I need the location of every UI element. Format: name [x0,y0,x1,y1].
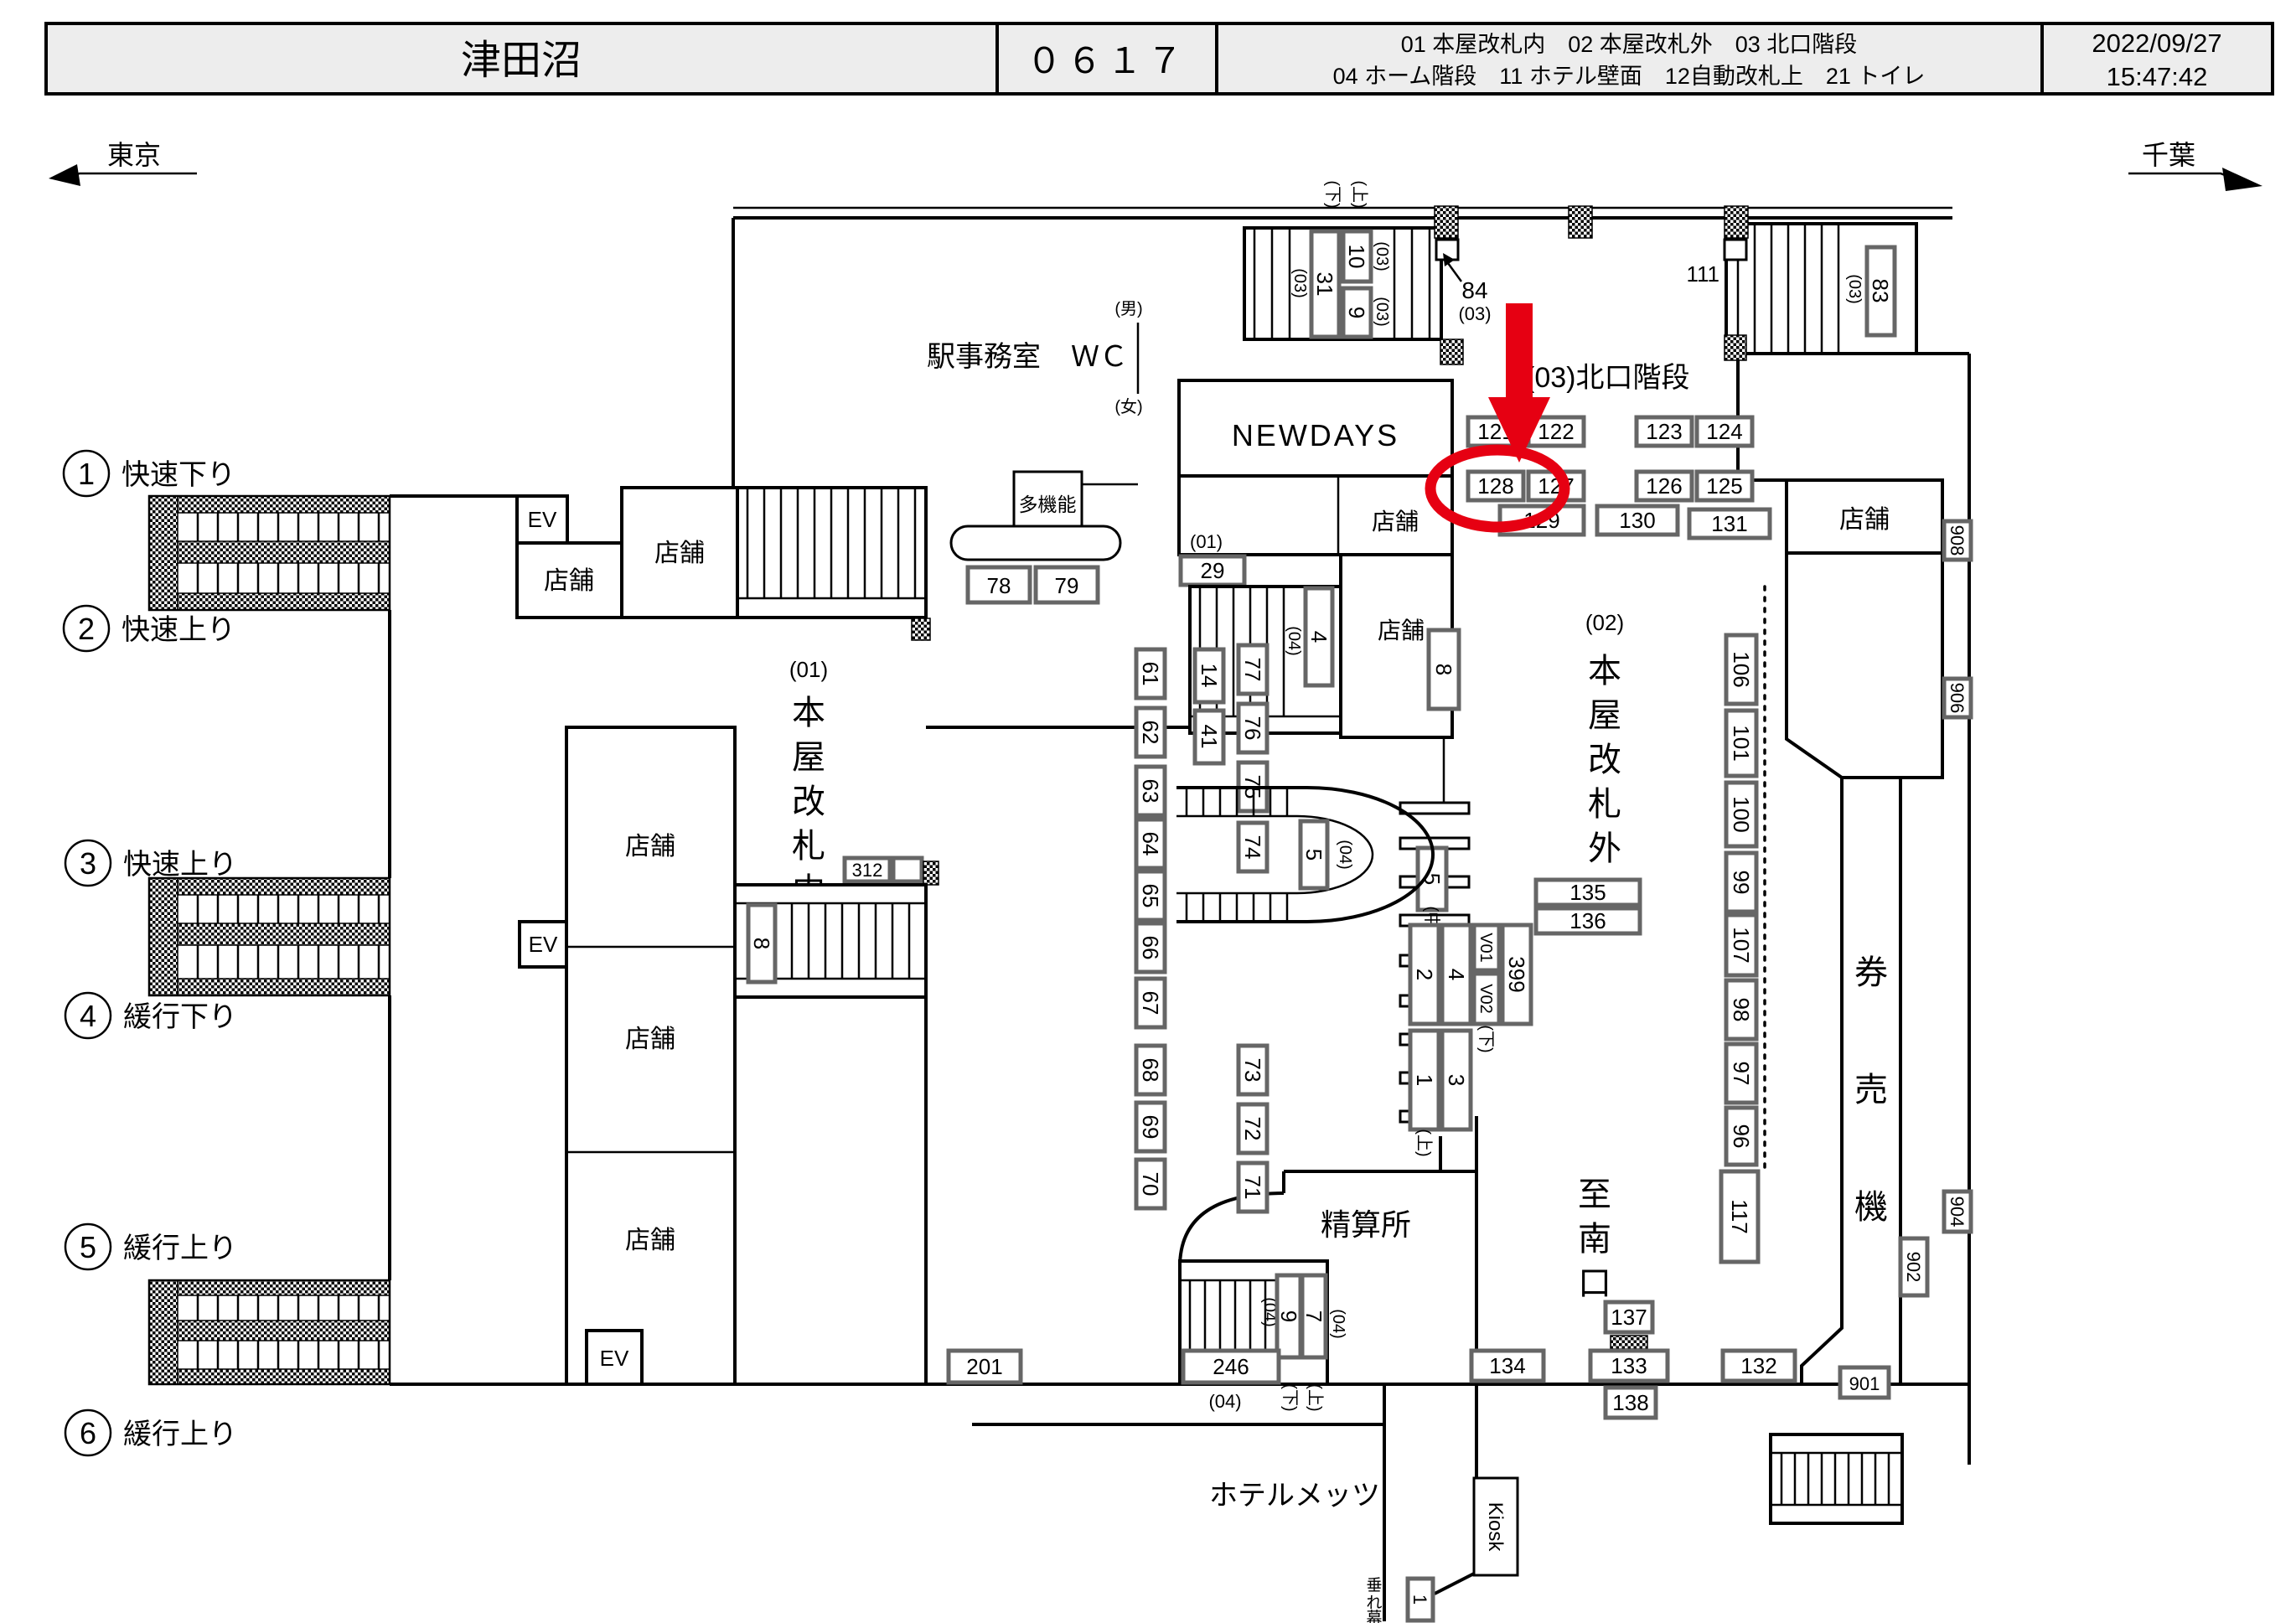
ad-69: 69 [1138,1115,1163,1140]
pillar-icon [1435,206,1458,238]
stair-03-tag: (03) [1373,241,1391,271]
ad-106: 106 [1729,651,1754,687]
up-tag: (上) [1350,180,1369,208]
ticket-gates: 5 (中) 2 4 V01 V02 399 (下) 1 3 (上) [1400,803,1531,1157]
outside-char: 札 [1588,786,1621,823]
ad-73: 73 [1240,1058,1265,1083]
pillar-icon [923,861,939,885]
tvm-char: 機 [1854,1189,1888,1226]
ad-312-group: 312 [845,858,939,885]
ad-97: 97 [1729,1062,1754,1086]
stairs-upper-left [737,488,930,640]
left-center-shops: 店舗 店舗 店舗 EV EV [520,727,735,1384]
station-office-label: 駅事務室 [927,341,1041,373]
blank-box [893,858,922,881]
ad-117: 117 [1727,1199,1752,1233]
fare-office-label: 精算所 [1321,1207,1411,1242]
to-south-exit-label: 至 南 口 [1578,1176,1611,1302]
ad-83: 83 [1868,279,1893,303]
stairs-north-right: (03) 83 111 [1686,206,1916,360]
ad-14: 14 [1197,664,1222,688]
platform-3-name: 快速上り [123,849,237,881]
platform-1-number: 1 [78,457,95,491]
pillar-ads-right-column: 77 76 75 74 73 72 71 [1238,645,1267,1212]
pillar-icon [1440,339,1463,364]
ad-122: 122 [1538,419,1574,444]
north-stairs-label: (03)北口階段 [1525,362,1689,394]
wc-label: ＷＣ [1071,341,1128,373]
ad-8-gate: 8 [1431,664,1456,675]
south-wall-ads: 134 137 133 138 132 [1471,1302,1795,1418]
counter [951,526,1120,560]
outside-gate-area-label: (02) 本 屋 改 札 外 [1585,610,1624,867]
ev-1-label: EV [528,507,557,532]
highlight-arrow-shaft [1506,303,1533,399]
ad-10: 10 [1344,245,1369,269]
south-char: 至 [1578,1176,1611,1213]
ad-126: 126 [1646,473,1682,499]
ev-3-label: EV [600,1346,629,1371]
ad-62: 62 [1138,721,1163,745]
outside-char: 外 [1588,830,1621,867]
ad-123: 123 [1646,419,1682,444]
ad-71: 71 [1240,1176,1265,1200]
ad-246: 246 [1213,1354,1249,1379]
ad-70: 70 [1138,1172,1163,1197]
station-name: 津田沼 [461,39,582,83]
shop-label: 店舗 [1372,509,1419,535]
inside-char: 札 [792,828,825,865]
ev-shop-row-upper: EV 店舗 店舗 [517,488,930,640]
area-02-tag: (02) [1585,610,1624,635]
stairs-u-central: 5 (04) [1176,788,1433,922]
stair-03-tag: (03) [1290,268,1309,298]
stair-03-tag: (03) [1373,297,1391,327]
legend-line-1: 01 本屋改札内 02 本屋改札外 03 北口階段 [1401,32,1858,57]
ad-61: 61 [1138,662,1163,686]
platform-stair-band-56 [149,1280,390,1384]
ad-137: 137 [1611,1305,1647,1330]
ad-128: 128 [1477,473,1513,499]
ad-67: 67 [1138,991,1163,1016]
ad-130: 130 [1619,508,1655,533]
platform-4: 4緩行下り [65,993,237,1038]
time-text: 15:47:42 [2107,62,2208,91]
shop-block [566,727,735,1384]
map-code: ０６１７ [1026,41,1187,80]
ad-906: 906 [1947,683,1968,714]
ad-9: 9 [1344,307,1369,318]
platform-6: 6緩行上り [65,1410,237,1455]
tokyo-label: 東京 [107,140,161,170]
area-01-tag: (01) [789,657,828,682]
tvm-char: 券 [1854,954,1888,991]
pillar-icon [1569,206,1592,238]
left-arrow-icon [49,164,80,186]
ad-banner-1: 1 [1409,1595,1430,1605]
ad-98: 98 [1729,998,1754,1022]
platform-1-name: 快速下り [122,459,235,491]
upper-left-facilities: 駅事務室 ＷＣ (男) (女) 多機能 [927,300,1143,560]
ad-65: 65 [1138,884,1163,908]
ad-29: 29 [1201,558,1225,583]
ad-gate-4: 4 [1444,969,1469,980]
ad-136: 136 [1569,908,1606,933]
down-tag: (下) [1280,1383,1299,1411]
ad-125: 125 [1706,473,1742,499]
ad-76: 76 [1240,716,1265,741]
ad-111: 111 [1686,261,1719,287]
ad-133: 133 [1611,1353,1647,1378]
ad-201: 201 [966,1354,1002,1379]
platform-stair-band-12 [149,496,390,610]
pillar-icon [1725,206,1748,238]
platform-2-name: 快速上り [122,614,235,646]
ad-7: 7 [1301,1310,1326,1322]
area-01-tag: (01) [1190,531,1223,552]
ev-2-label: EV [529,932,558,957]
platform-5-name: 緩行上り [123,1233,237,1264]
hotel-label: ホテルメッツ [1209,1480,1380,1512]
down-tag: (下) [1323,180,1342,208]
ad-399: 399 [1504,956,1529,992]
ad-72: 72 [1240,1117,1265,1141]
station-map: 津田沼 ０６１７ 01 本屋改札内 02 本屋改札外 03 北口階段 04 ホー… [0,0,2296,1623]
banner-char: 垂 [1366,1576,1382,1595]
banner-char: 幕 [1366,1609,1382,1623]
ad-79: 79 [1055,573,1079,598]
ad-107: 107 [1729,927,1754,963]
ad-63: 63 [1138,779,1163,804]
direction-tokyo: 東京 [49,140,197,186]
ad-gate-1: 1 [1412,1074,1437,1086]
ad-312: 312 [852,860,883,881]
south-area: Kiosk ホテルメッツ 垂 れ 幕 1 [1209,1478,1518,1623]
ads-135-136: 135 136 [1536,880,1640,933]
ad-68: 68 [1138,1058,1163,1083]
south-char: 口 [1578,1265,1611,1302]
stairs-center-left: 8 [735,885,926,997]
ad-138: 138 [1612,1390,1648,1415]
ad-908: 908 [1947,525,1968,556]
ad-132: 132 [1740,1353,1776,1378]
pillar-icon [912,618,930,640]
platform-5-number: 5 [80,1230,96,1264]
ad-V02: V02 [1476,984,1495,1014]
ad-74: 74 [1240,835,1265,860]
wc-male-label: (男) [1114,300,1142,318]
up-tag: (上) [1306,1383,1325,1411]
shop-label: 店舗 [654,540,705,567]
shop-label: 店舗 [625,1227,675,1254]
fare-adjust-area: 精算所 (04) 9 7 (04) 246 (04) (下) (上) [1180,1207,1411,1412]
ad-84-tag: (03) [1458,303,1491,324]
ad-96: 96 [1729,1124,1754,1149]
ad-100: 100 [1729,796,1754,832]
pillar-icon [1611,1336,1647,1349]
ad-77: 77 [1240,658,1265,682]
up-tag: (上) [1414,1129,1434,1156]
south-char: 南 [1578,1221,1611,1258]
stairs-south-right [1771,1434,1902,1523]
platform-5: 5緩行上り [65,1224,237,1269]
ad-131: 131 [1711,511,1747,536]
right-arrow-icon [2222,168,2262,191]
ad-64: 64 [1138,832,1163,856]
direction-chiba: 千葉 [2128,140,2262,191]
ad-gate-3: 3 [1444,1074,1469,1086]
header-bar: 津田沼 ０６１７ 01 本屋改札内 02 本屋改札外 03 北口階段 04 ホー… [46,23,2273,94]
pillar-ads-left-column: 61 62 63 64 65 66 67 68 69 70 [1136,649,1165,1208]
ad-84: 84 [1461,277,1487,303]
stair-04-tag: (04) [1208,1391,1241,1412]
shop-label: 店舗 [1378,618,1425,644]
ad-V01: V01 [1476,933,1495,963]
date-text: 2022/09/27 [2092,28,2221,58]
platform-1: 1快速下り [64,451,235,496]
ad-99: 99 [1729,871,1754,895]
platform-stair-band-34 [149,878,390,995]
ad-101: 101 [1729,725,1754,761]
ad-41: 41 [1197,725,1222,749]
legend-line-2: 04 ホーム階段 11 ホテル壁面 12自動改札上 21 トイレ [1333,64,1926,89]
inside-char: 本 [792,695,825,731]
platform-6-number: 6 [80,1416,96,1450]
ad-124: 124 [1706,419,1742,444]
platform-6-name: 緩行上り [123,1419,237,1450]
chiba-label: 千葉 [2142,140,2195,170]
platform-2-number: 2 [78,612,95,646]
ad-78: 78 [987,573,1011,598]
inside-gate-area-label: (01) 本 屋 改 札 内 [789,657,828,909]
spot-111-box [1725,240,1746,260]
platform-4-number: 4 [80,999,96,1033]
ad-66: 66 [1138,936,1163,960]
ad-904: 904 [1947,1197,1968,1228]
platform-3-number: 3 [80,846,96,881]
shop-label: 店舗 [625,1026,675,1053]
ad-134: 134 [1489,1353,1525,1378]
down-tag: (下) [1476,1025,1495,1052]
tvm-char: 売 [1854,1072,1888,1109]
ad-4: 4 [1306,631,1332,643]
inside-char: 屋 [792,739,825,776]
ad-31: 31 [1312,272,1337,297]
right-shop-block: 店舗 908 906 904 902 券 売 機 901 [1787,480,1971,1398]
wc-female-label: (女) [1114,397,1142,416]
stair-04-tag: (04) [1329,1309,1347,1339]
ad-135: 135 [1569,880,1606,905]
stair-03-tag: (03) [1845,274,1864,304]
newdays-label: NEWDAYS [1232,418,1399,452]
platform-4-name: 緩行下り [123,1001,237,1033]
multifunction-label: 多機能 [1019,494,1077,515]
stair-04-tag: (04) [1285,626,1303,656]
ad-901: 901 [1849,1373,1880,1394]
outside-char: 屋 [1588,697,1621,734]
fence-ads-column: 106 101 100 99 107 98 97 96 117 [1721,635,1758,1262]
ad-8: 8 [749,938,774,949]
outside-char: 改 [1588,742,1621,778]
ad-gate-2: 2 [1412,969,1437,980]
shop-label: 店舗 [625,833,675,861]
outside-char: 本 [1588,653,1621,690]
inside-char: 改 [792,783,825,820]
stair-04-tag: (04) [1336,840,1354,870]
ads-78-79: 78 79 [968,567,1098,602]
shop-label: 店舗 [1839,506,1890,534]
platform-2: 2快速上り [64,606,235,651]
ad-9-fare: 9 [1276,1310,1301,1322]
ad-5-u: 5 [1301,849,1326,861]
ad-902: 902 [1903,1252,1924,1283]
pillar-icon [1725,335,1746,360]
tokyo-underline [59,173,197,179]
kiosk-label: Kiosk [1484,1502,1507,1553]
shop-label: 店舗 [544,567,594,595]
